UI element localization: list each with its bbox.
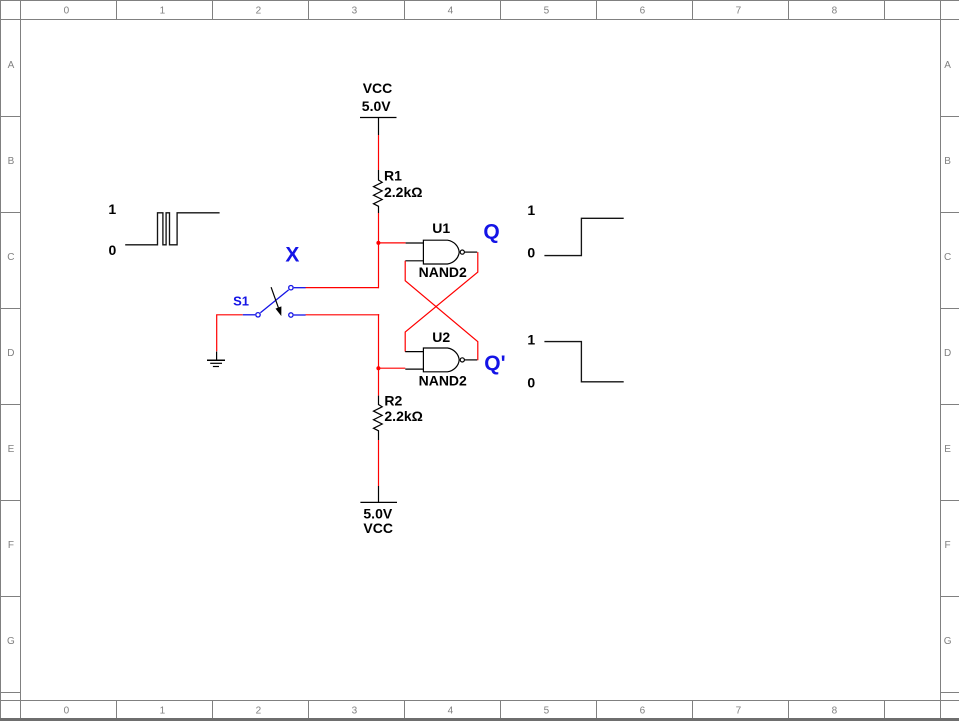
svg-text:R1: R1: [384, 167, 402, 183]
svg-text:A: A: [8, 60, 15, 71]
svg-text:F: F: [945, 540, 951, 551]
svg-text:VCC: VCC: [363, 80, 393, 96]
svg-text:0: 0: [109, 242, 117, 258]
svg-text:D: D: [944, 348, 951, 359]
svg-text:1: 1: [108, 201, 116, 217]
svg-text:1: 1: [527, 332, 535, 348]
svg-text:2: 2: [256, 5, 262, 16]
svg-text:R2: R2: [384, 392, 402, 408]
svg-text:S1: S1: [233, 293, 249, 308]
svg-text:2: 2: [256, 705, 262, 716]
svg-text:C: C: [944, 252, 951, 263]
svg-text:3: 3: [352, 705, 358, 716]
svg-text:0: 0: [64, 5, 70, 16]
svg-text:7: 7: [736, 705, 742, 716]
svg-text:6: 6: [640, 705, 646, 716]
svg-text:U2: U2: [432, 329, 450, 345]
svg-text:7: 7: [736, 5, 742, 16]
svg-text:C: C: [7, 252, 14, 263]
svg-text:Q: Q: [483, 221, 499, 244]
svg-text:1: 1: [160, 705, 166, 716]
svg-text:2.2kΩ: 2.2kΩ: [384, 408, 422, 424]
svg-text:E: E: [944, 444, 951, 455]
svg-text:D: D: [7, 348, 14, 359]
svg-text:5: 5: [544, 705, 550, 716]
svg-text:3: 3: [352, 5, 358, 16]
svg-text:1: 1: [527, 202, 535, 218]
svg-text:B: B: [8, 156, 15, 167]
svg-text:8: 8: [832, 5, 838, 16]
svg-text:Q': Q': [484, 352, 505, 375]
svg-text:0: 0: [527, 375, 535, 391]
svg-text:0: 0: [527, 245, 535, 261]
svg-text:0: 0: [64, 705, 70, 716]
svg-text:B: B: [944, 156, 951, 167]
svg-text:5.0V: 5.0V: [363, 505, 392, 521]
svg-text:4: 4: [448, 5, 454, 16]
svg-text:5: 5: [544, 5, 550, 16]
svg-text:6: 6: [640, 5, 646, 16]
svg-text:U1: U1: [432, 220, 450, 236]
svg-text:F: F: [8, 540, 14, 551]
svg-text:8: 8: [832, 705, 838, 716]
svg-text:NAND2: NAND2: [419, 264, 467, 280]
svg-text:1: 1: [160, 5, 166, 16]
svg-text:5.0V: 5.0V: [362, 98, 391, 114]
svg-text:A: A: [944, 60, 951, 71]
svg-text:NAND2: NAND2: [419, 373, 467, 389]
svg-text:X: X: [285, 243, 299, 266]
svg-text:G: G: [944, 636, 952, 647]
svg-text:2.2kΩ: 2.2kΩ: [384, 184, 422, 200]
svg-text:G: G: [7, 636, 15, 647]
svg-text:E: E: [8, 444, 15, 455]
svg-text:4: 4: [448, 705, 454, 716]
svg-text:VCC: VCC: [363, 520, 393, 536]
